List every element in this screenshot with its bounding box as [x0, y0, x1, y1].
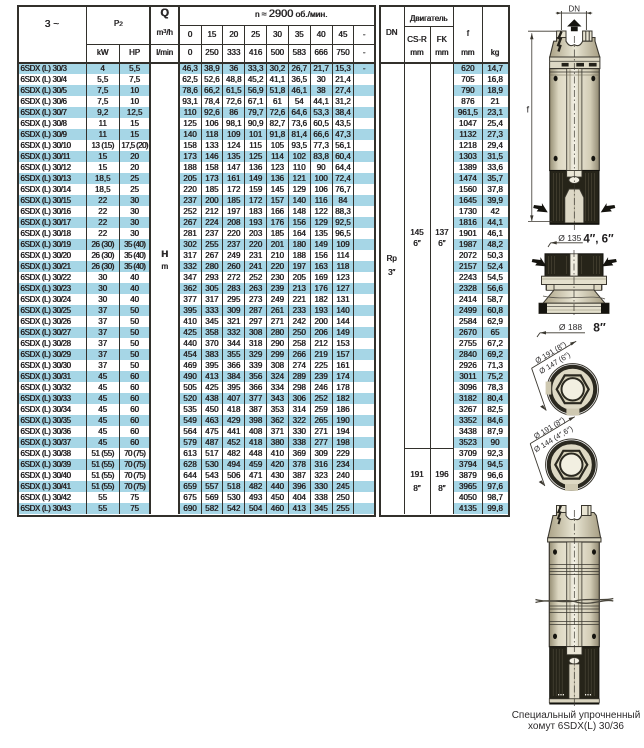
svg-text:Ø 188: Ø 188: [559, 322, 582, 332]
svg-text:Ø 135: Ø 135: [558, 233, 581, 243]
svg-text:f: f: [526, 105, 529, 116]
svg-text:4″, 6″: 4″, 6″: [583, 233, 614, 245]
svg-text:8″: 8″: [593, 321, 606, 335]
svg-text:DN: DN: [569, 5, 581, 14]
